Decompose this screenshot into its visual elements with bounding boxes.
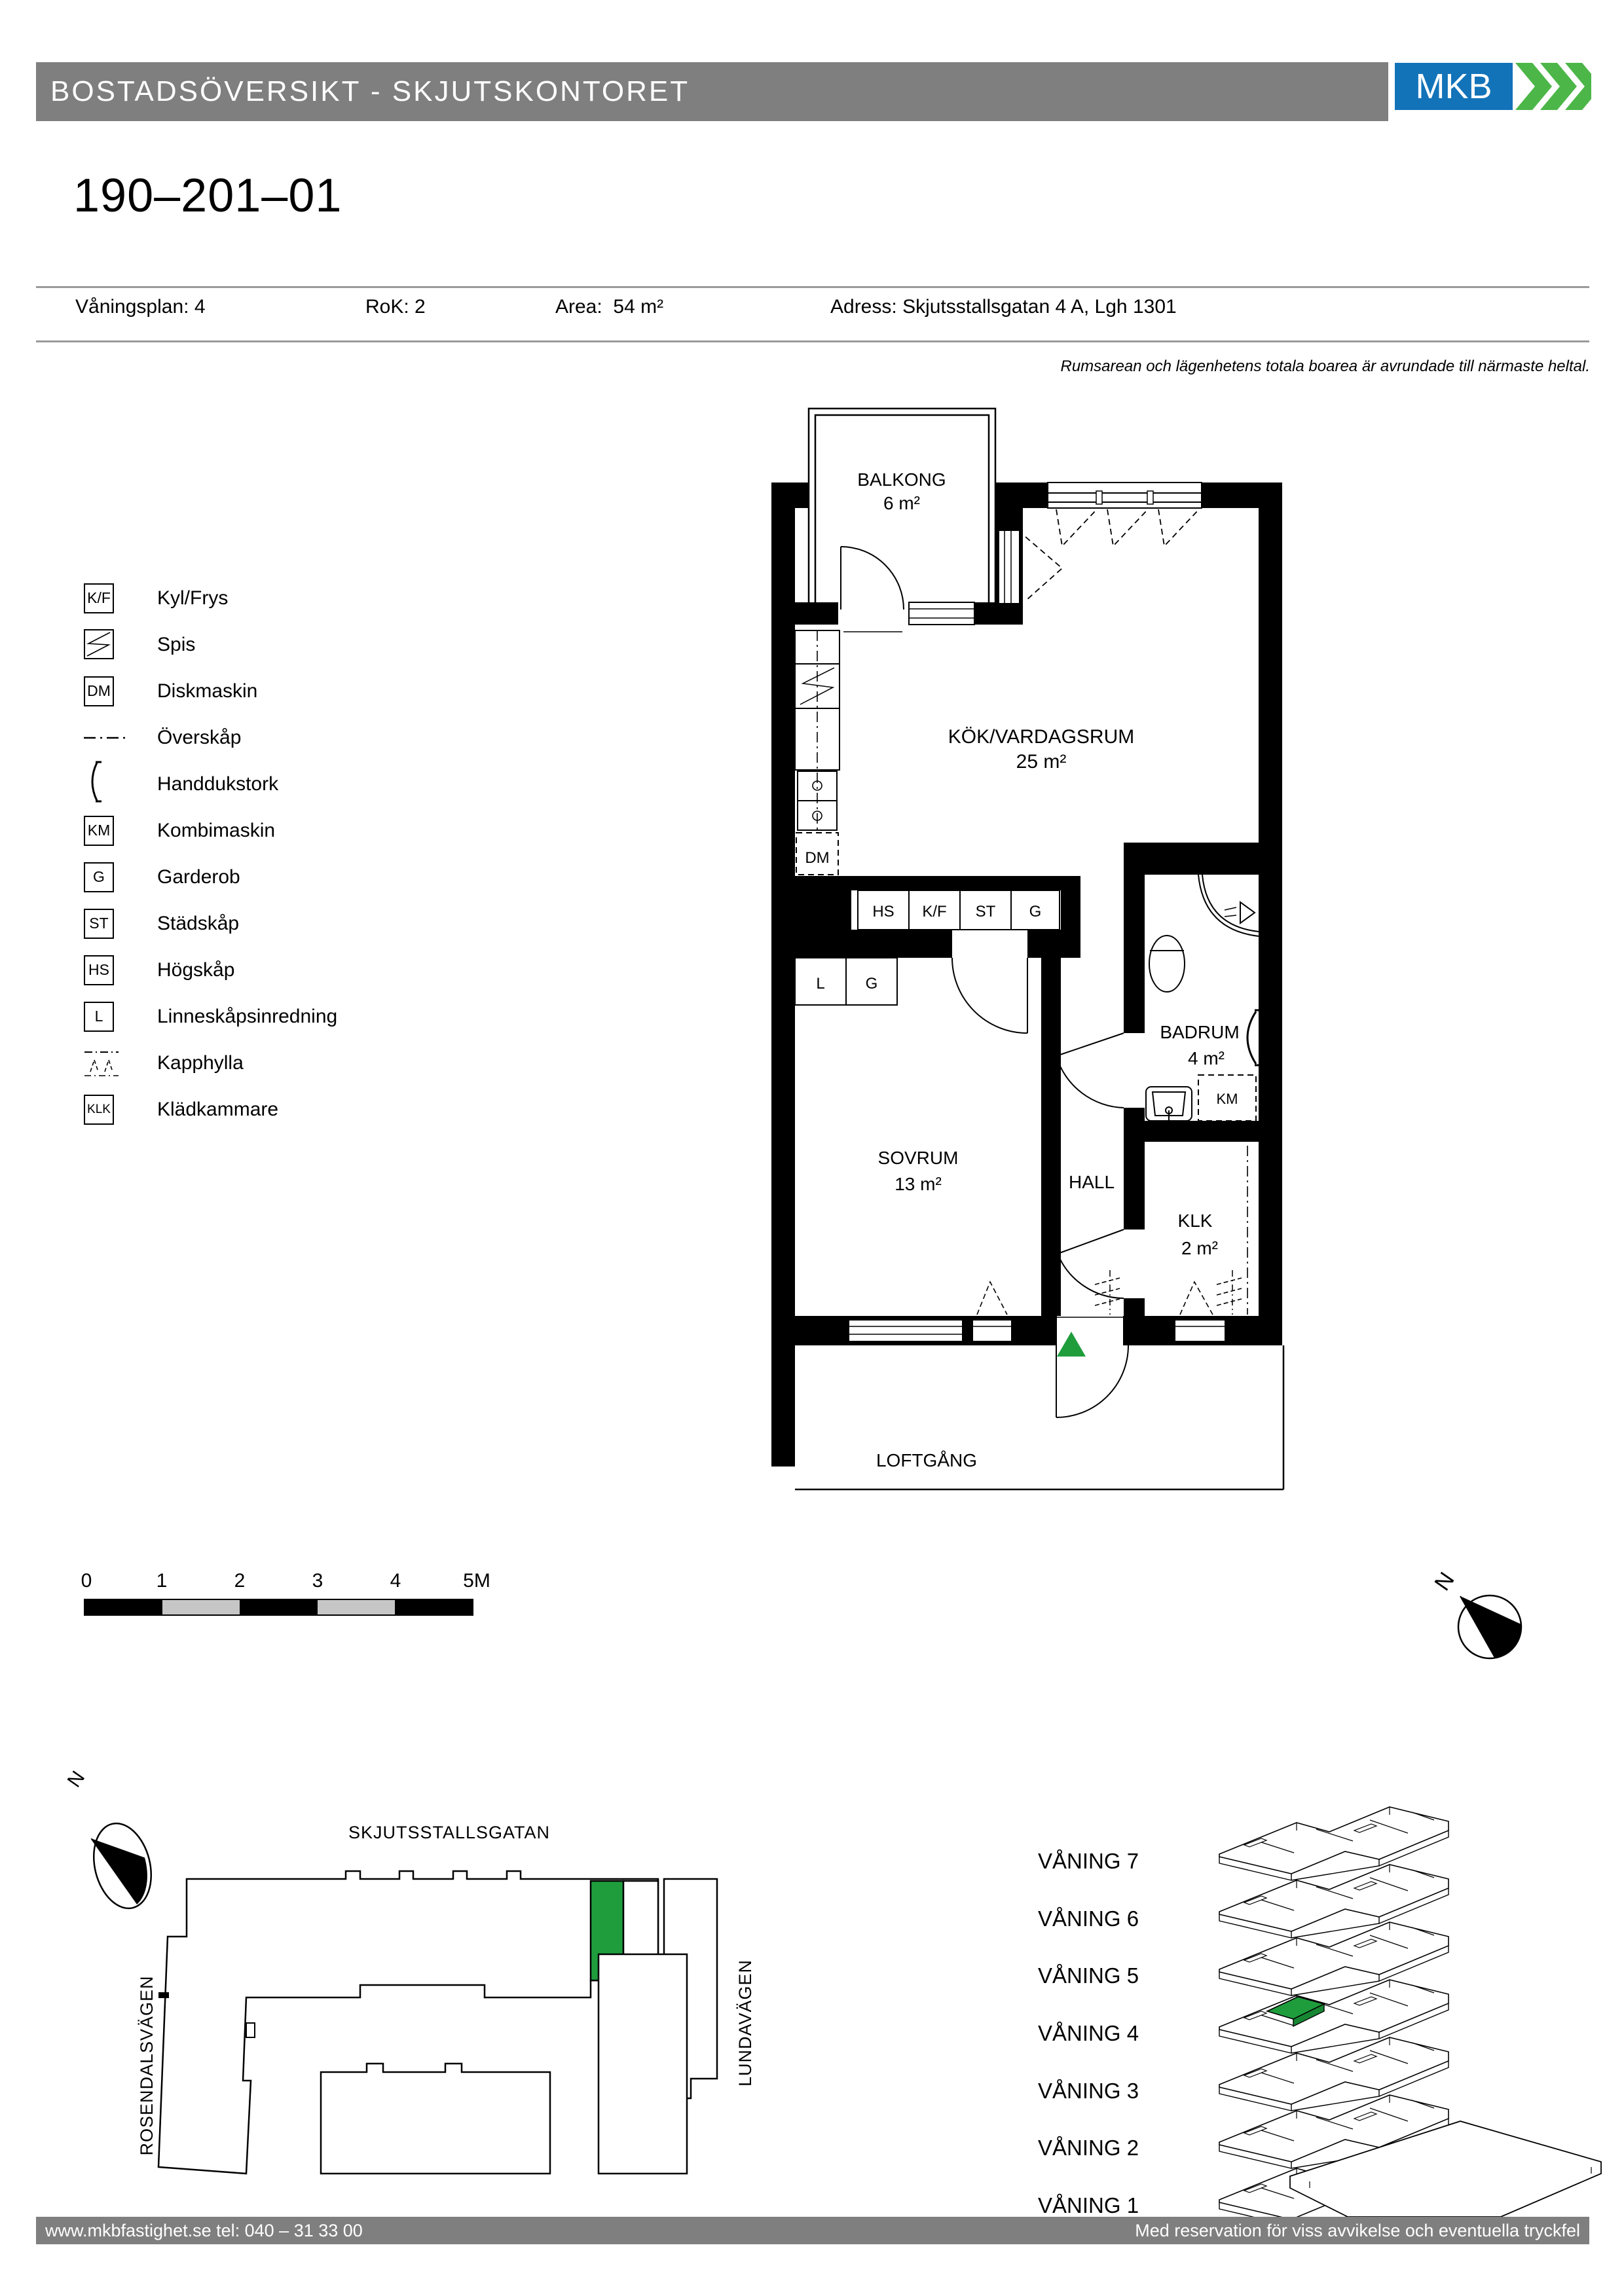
room-label-badrum: BADRUM [1160,1022,1239,1042]
floor-plan: DM HS K/F ST G L G [766,406,1297,1519]
info-floor: Våningsplan: 4 [75,296,206,318]
fixture-label-kf: K/F [922,903,946,920]
floor-label-5: VÅNING 5 [1038,1963,1139,1988]
fixture-label-g2: G [866,975,878,993]
floor-plate-4 [1219,1980,1449,2053]
site-north-compass-icon [85,1817,159,1914]
legend-item-stadskap: ST Städskåp [84,908,337,939]
wardrobe-icon: G [84,862,114,892]
floor-label-3: VÅNING 3 [1038,2079,1139,2103]
divider-line [36,286,1589,288]
legend-item-linneskap: L Linneskåpsinredning [84,1001,337,1032]
fixture-label-km: KM [1217,1091,1238,1107]
footer-disclaimer: Med reservation för viss avvikelse och e… [1126,2221,1589,2241]
floor-label-7: VÅNING 7 [1038,1849,1139,1873]
room-label-klk: KLK [1178,1211,1213,1231]
floor-plate-7 [1219,1807,1449,1880]
floor-label-6: VÅNING 6 [1038,1906,1139,1931]
scale-bar: 0 1 2 3 4 5M [84,1570,477,1622]
linen-cabinet-icon: L [84,1002,114,1032]
floor-plate-6 [1219,1865,1449,1938]
scale-bar-segments [84,1599,473,1616]
window-icon [999,530,1062,604]
window-band-icon [1048,483,1202,546]
toilet-icon [1149,936,1185,992]
coat-shelf-icon [84,1049,119,1077]
room-area-kok: 25 m² [1016,751,1067,773]
room-label-kok: KÖK/VARDAGSRUM [948,726,1135,748]
building-bottom-centre [321,2064,550,2174]
building-bump [246,2023,255,2037]
floor-label-4: VÅNING 4 [1038,2021,1139,2045]
window-icon [909,602,974,625]
divider-line [36,340,1589,342]
north-label: N [64,1767,89,1791]
room-label-loftgang: LOFTGÅNG [876,1450,977,1470]
legend-item-hogskap: HS Högskåp [84,955,337,985]
room-area-klk: 2 m² [1181,1238,1218,1258]
tall-cabinet-icon: HS [84,955,114,985]
legend-item-kombimaskin: KM Kombimaskin [84,815,337,846]
building-entry-tick [158,1992,169,1998]
room-area-sovrum: 13 m² [895,1174,942,1194]
room-label-sovrum: SOVRUM [878,1148,959,1168]
north-label: N [1430,1568,1459,1595]
legend-item-kylfrys: K/F Kyl/Frys [84,583,337,613]
site-map: N SKJUTSSTALLSGATAN ROSENDALSVÄGEN LUNDA… [52,1715,773,2187]
area-rounding-note: Rumsarean och lägenhetens totala boarea … [804,357,1590,376]
info-address: Adress: Skjutsstallsgatan 4 A, Lgh 1301 [830,296,1177,318]
info-rok: RoK: 2 [365,296,426,318]
floor-stack: VÅNING 7 VÅNING 6 VÅNING 5 VÅNING 4 VÅNI… [1002,1755,1624,2219]
room-label-balkong: BALKONG [857,469,946,490]
mkb-logo: MKB [1395,62,1591,111]
street-label-rosendalsvagen: ROSENDALSVÄGEN [137,1975,157,2155]
towel-rail-icon [84,760,103,803]
fixture-label-st: ST [976,903,996,920]
legend-item-kladkammare: KLK Klädkammare [84,1094,337,1125]
floor-label-2: VÅNING 2 [1038,2136,1139,2160]
washer-dryer-icon: KM [84,816,114,846]
legend-item-garderob: G Garderob [84,862,337,892]
fixture-label-g: G [1029,903,1042,920]
stove-icon [84,629,115,660]
room-area-balkong: 6 m² [883,493,920,513]
floor-plate-3 [1219,2037,1449,2111]
floor-plate-5 [1219,1922,1449,1995]
bathroom-door-icon [1056,1033,1124,1108]
building-bottom-right [599,1954,687,2174]
floorplan-document: { "header": { "title": "BOSTADSÖVERSIKT … [0,0,1624,2296]
legend-item-kapphylla: Kapphylla [84,1048,337,1078]
fixture-label-hs: HS [872,903,894,920]
bedroom-closets [795,958,897,1005]
document-title: BOSTADSÖVERSIKT - SKJUTSKONTORET [36,75,690,108]
legend-item-diskmaskin: DM Diskmaskin [84,676,337,706]
walk-in-closet-icon: KLK [84,1095,114,1125]
bedroom-door-icon [952,958,1027,1033]
info-area: Area: 54 m² [555,296,663,318]
room-area-badrum: 4 m² [1188,1048,1225,1068]
room-label-hall: HALL [1069,1172,1115,1192]
mkb-logo-text: MKB [1415,67,1492,106]
balcony-door-icon [838,547,909,632]
shower-icon [1198,875,1259,936]
legend-item-handdukstork: Handdukstork [84,769,337,799]
floor-label-1: VÅNING 1 [1038,2193,1139,2217]
fixture-label-l: L [816,975,824,993]
header-bar: BOSTADSÖVERSIKT - SKJUTSKONTORET [36,62,1388,121]
footer-contact: www.mkbfastighet.se tel: 040 – 31 33 00 [36,2221,372,2241]
cleaning-cabinet-icon: ST [84,909,114,939]
coat-shelf-icon [1095,1270,1242,1315]
legend: K/F Kyl/Frys Spis DM Diskmaskin Överskåp… [84,583,337,1125]
street-label-skjutsstallsgatan: SKJUTSSTALLSGATAN [348,1823,550,1842]
floor-labels: VÅNING 7 VÅNING 6 VÅNING 5 VÅNING 4 VÅNI… [1038,1849,1139,2217]
north-compass-icon: N [1421,1558,1552,1689]
walkway-outline [795,1345,1283,1489]
apartment-id: 190–201–01 [73,169,342,223]
wall-cabinet-icon [84,735,126,741]
footer-bar: www.mkbfastighet.se tel: 040 – 31 33 00 … [36,2217,1589,2244]
dishwasher-icon: DM [84,676,114,706]
fixture-label-dm: DM [805,849,829,867]
street-label-lundavagen: LUNDAVÄGEN [735,1959,755,2086]
washbasin-icon [1146,1087,1192,1121]
kitchen-counter [795,630,840,875]
legend-item-spis: Spis [84,629,337,660]
mkb-logo-chevrons-icon [1515,63,1591,110]
closet-door-icon [1058,1230,1124,1298]
legend-item-overskap: Överskåp [84,722,337,753]
fridge-freezer-icon: K/F [84,583,114,613]
